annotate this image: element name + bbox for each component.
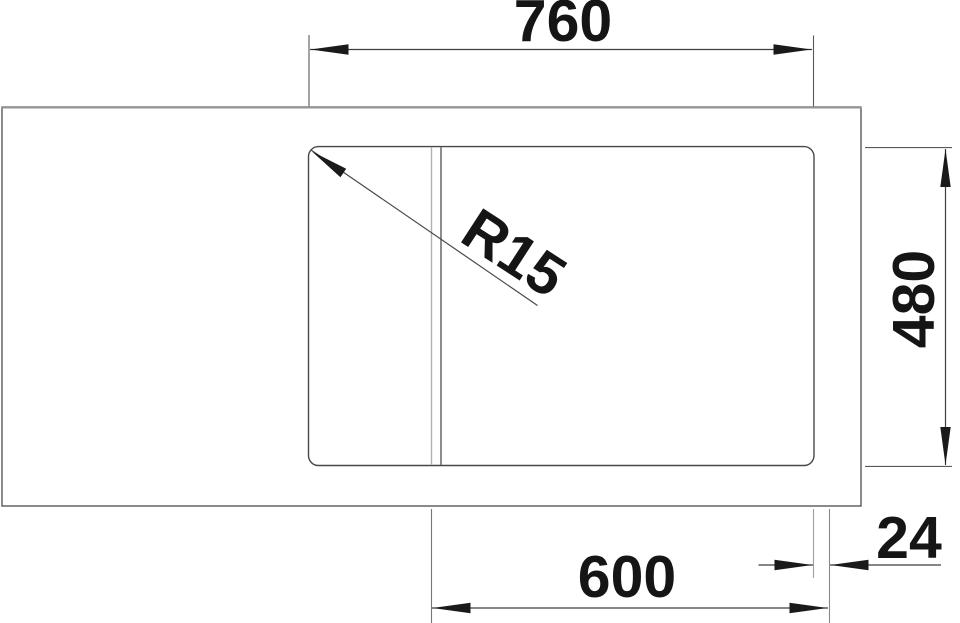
svg-text:480: 480 xyxy=(881,250,947,348)
svg-text:24: 24 xyxy=(876,505,942,571)
svg-text:760: 760 xyxy=(514,0,612,54)
svg-text:600: 600 xyxy=(578,544,676,610)
